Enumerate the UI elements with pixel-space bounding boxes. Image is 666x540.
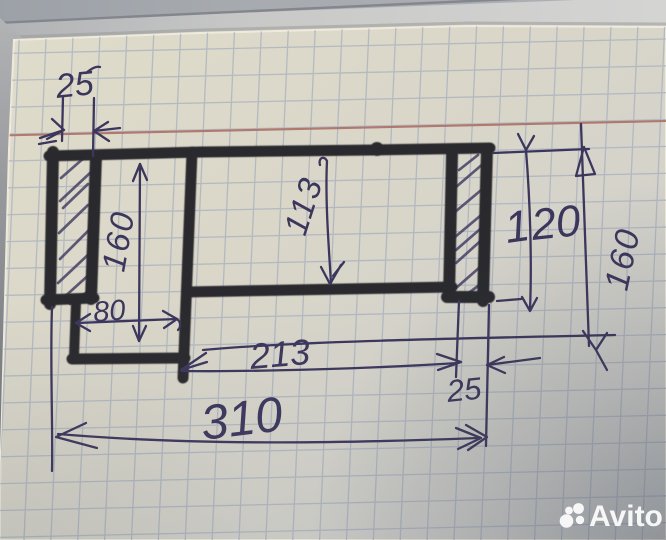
svg-text:Avito: Avito [589,500,663,533]
